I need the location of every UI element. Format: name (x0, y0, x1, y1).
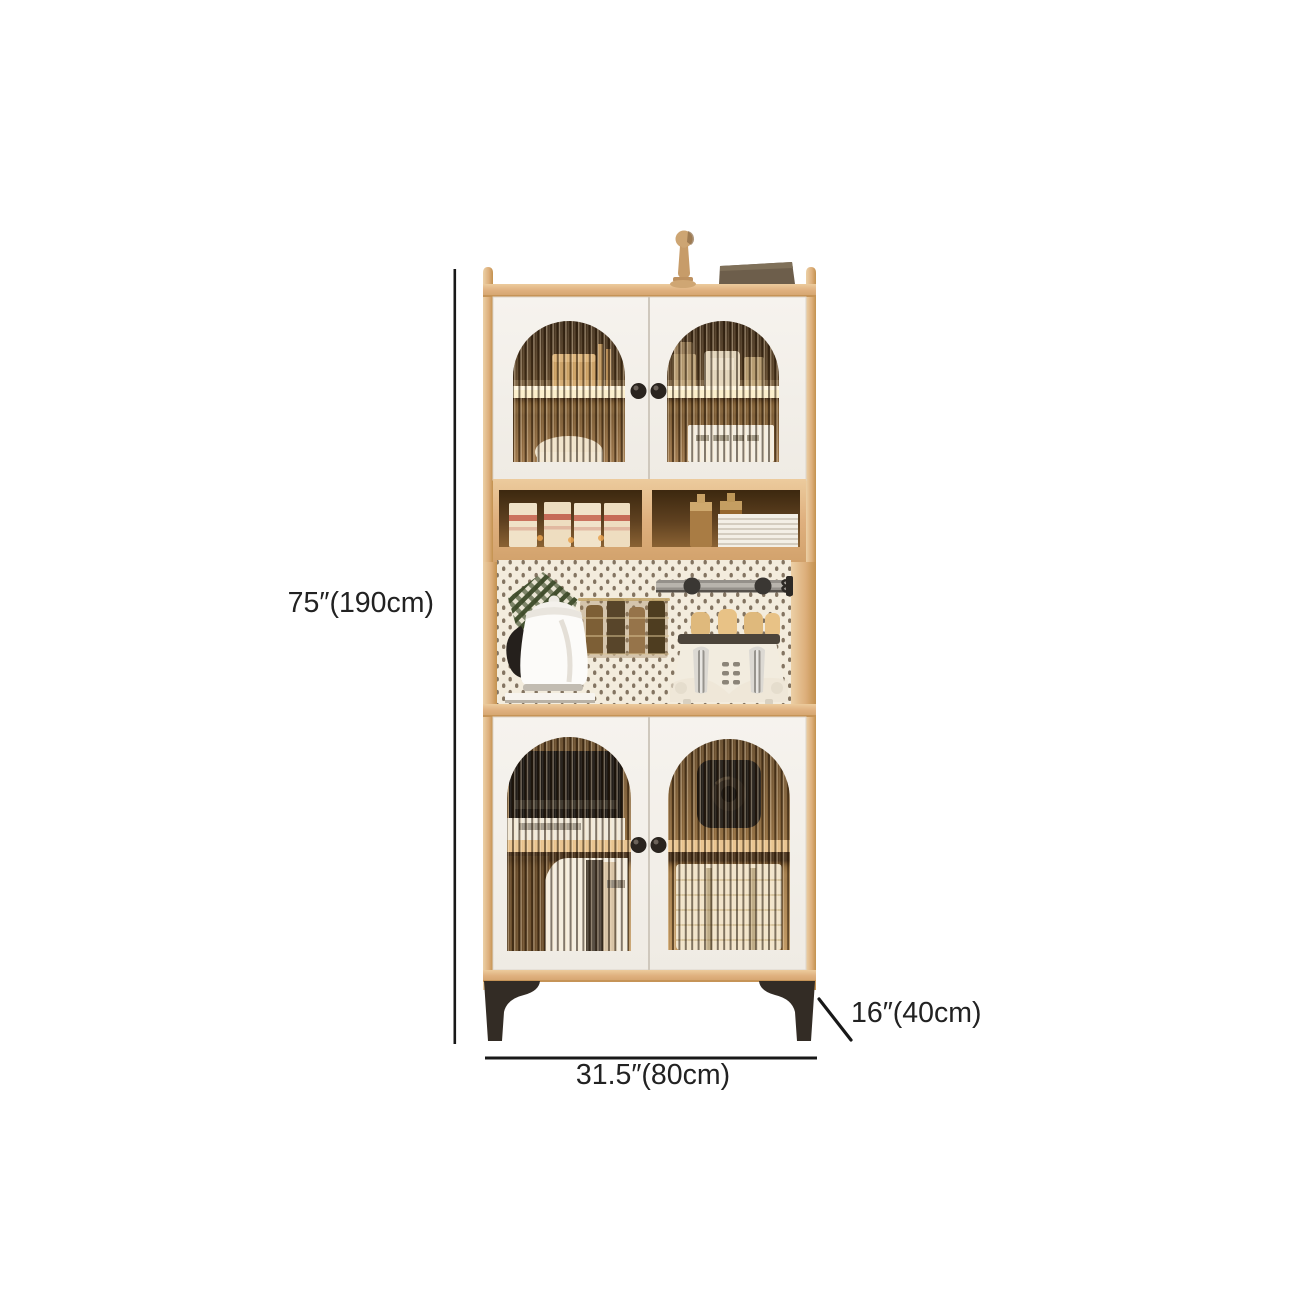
svg-text:75″(190cm): 75″(190cm) (288, 587, 434, 619)
svg-text:31.5″(80cm): 31.5″(80cm) (576, 1059, 730, 1091)
svg-text:16″(40cm): 16″(40cm) (851, 997, 981, 1029)
